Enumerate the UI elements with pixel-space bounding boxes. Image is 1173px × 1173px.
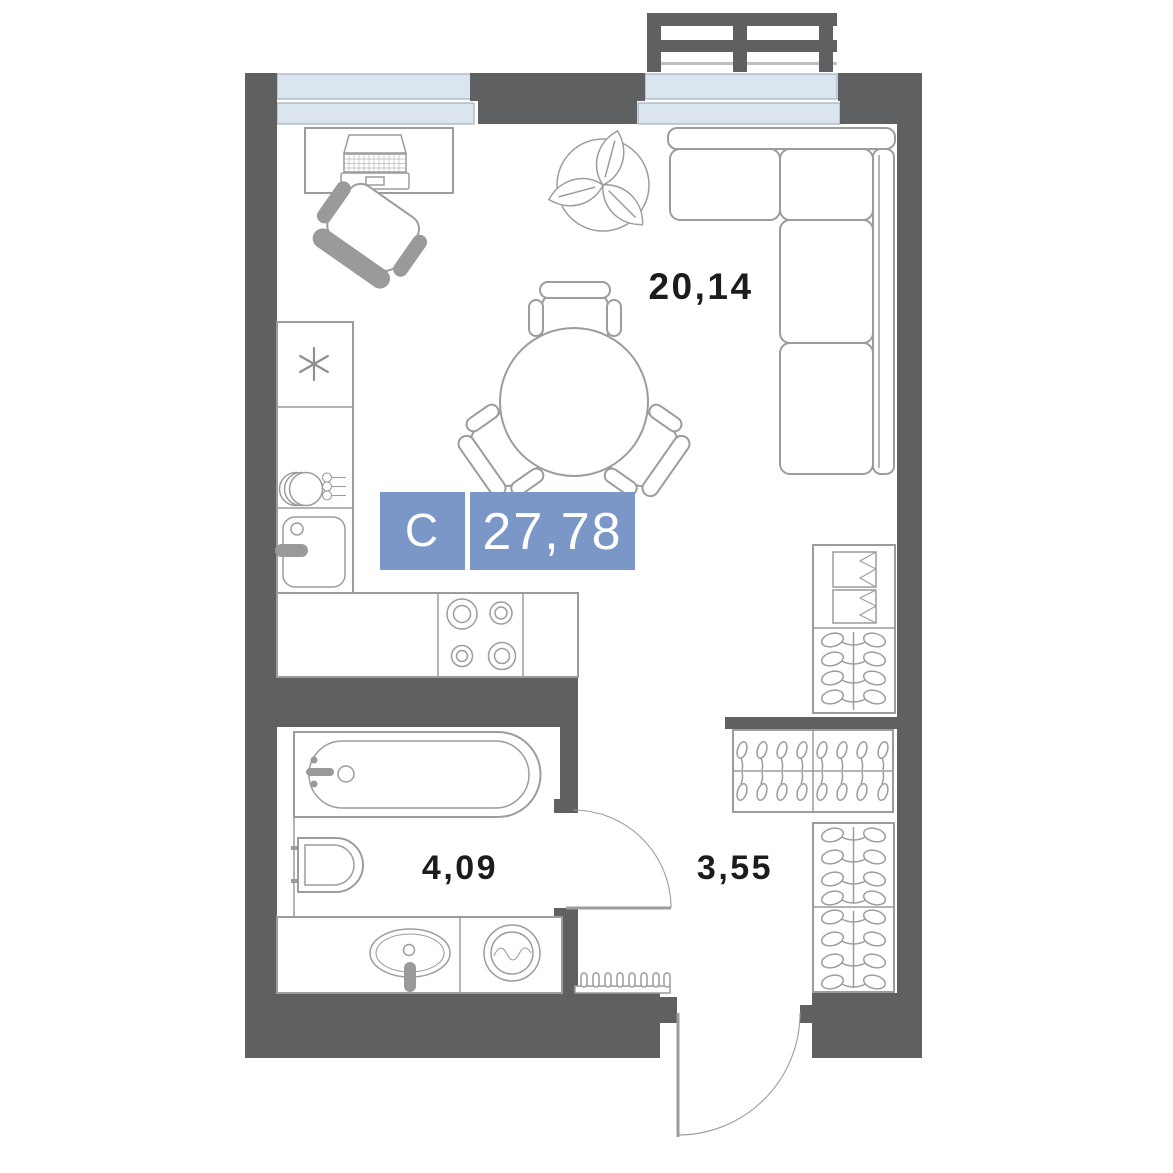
radiator-icon [575, 973, 670, 993]
kitchen-counter [277, 593, 578, 677]
wall-right [897, 73, 922, 1058]
bathroom [277, 732, 562, 993]
hallway-area-label: 3,55 [697, 849, 773, 887]
entry-door-swing-icon [678, 1013, 800, 1137]
plant-icon [546, 128, 652, 234]
bathroom-area-label: 4,09 [422, 849, 498, 887]
wall-kitchen-bathroom [245, 677, 578, 727]
window-living-left [277, 74, 474, 124]
dining-set [449, 282, 699, 508]
kitchen-sink-icon [275, 517, 345, 587]
wall-bathroom-right-upper [560, 677, 578, 813]
balcony-railing-icon [647, 13, 837, 72]
kitchen-column [275, 322, 353, 595]
wardrobe-shelves-icon [813, 545, 895, 713]
unit-total-area: 27,78 [482, 503, 622, 561]
window-balcony-door [638, 74, 840, 124]
toilet-icon [291, 838, 363, 892]
wall-left [245, 73, 277, 1058]
unit-badge: С 27,78 [380, 492, 635, 570]
living-area-label: 20,14 [648, 266, 753, 307]
coat-rack-icon [733, 730, 893, 812]
bathtub-icon [294, 732, 541, 817]
wall-top-middle [470, 73, 645, 101]
unit-type-letter: С [405, 504, 440, 556]
bath-counter [277, 917, 562, 993]
wall-bottom-left [245, 993, 660, 1058]
wardrobe-hangers-icon [813, 823, 894, 992]
bathroom-door-swing-icon [566, 810, 671, 908]
floor-plan: 20,14 4,09 3,55 С 27,78 [0, 0, 1173, 1173]
wall-bottom-right [812, 993, 922, 1058]
wall-hallway-living [725, 717, 922, 729]
dining-table-icon [500, 328, 648, 476]
